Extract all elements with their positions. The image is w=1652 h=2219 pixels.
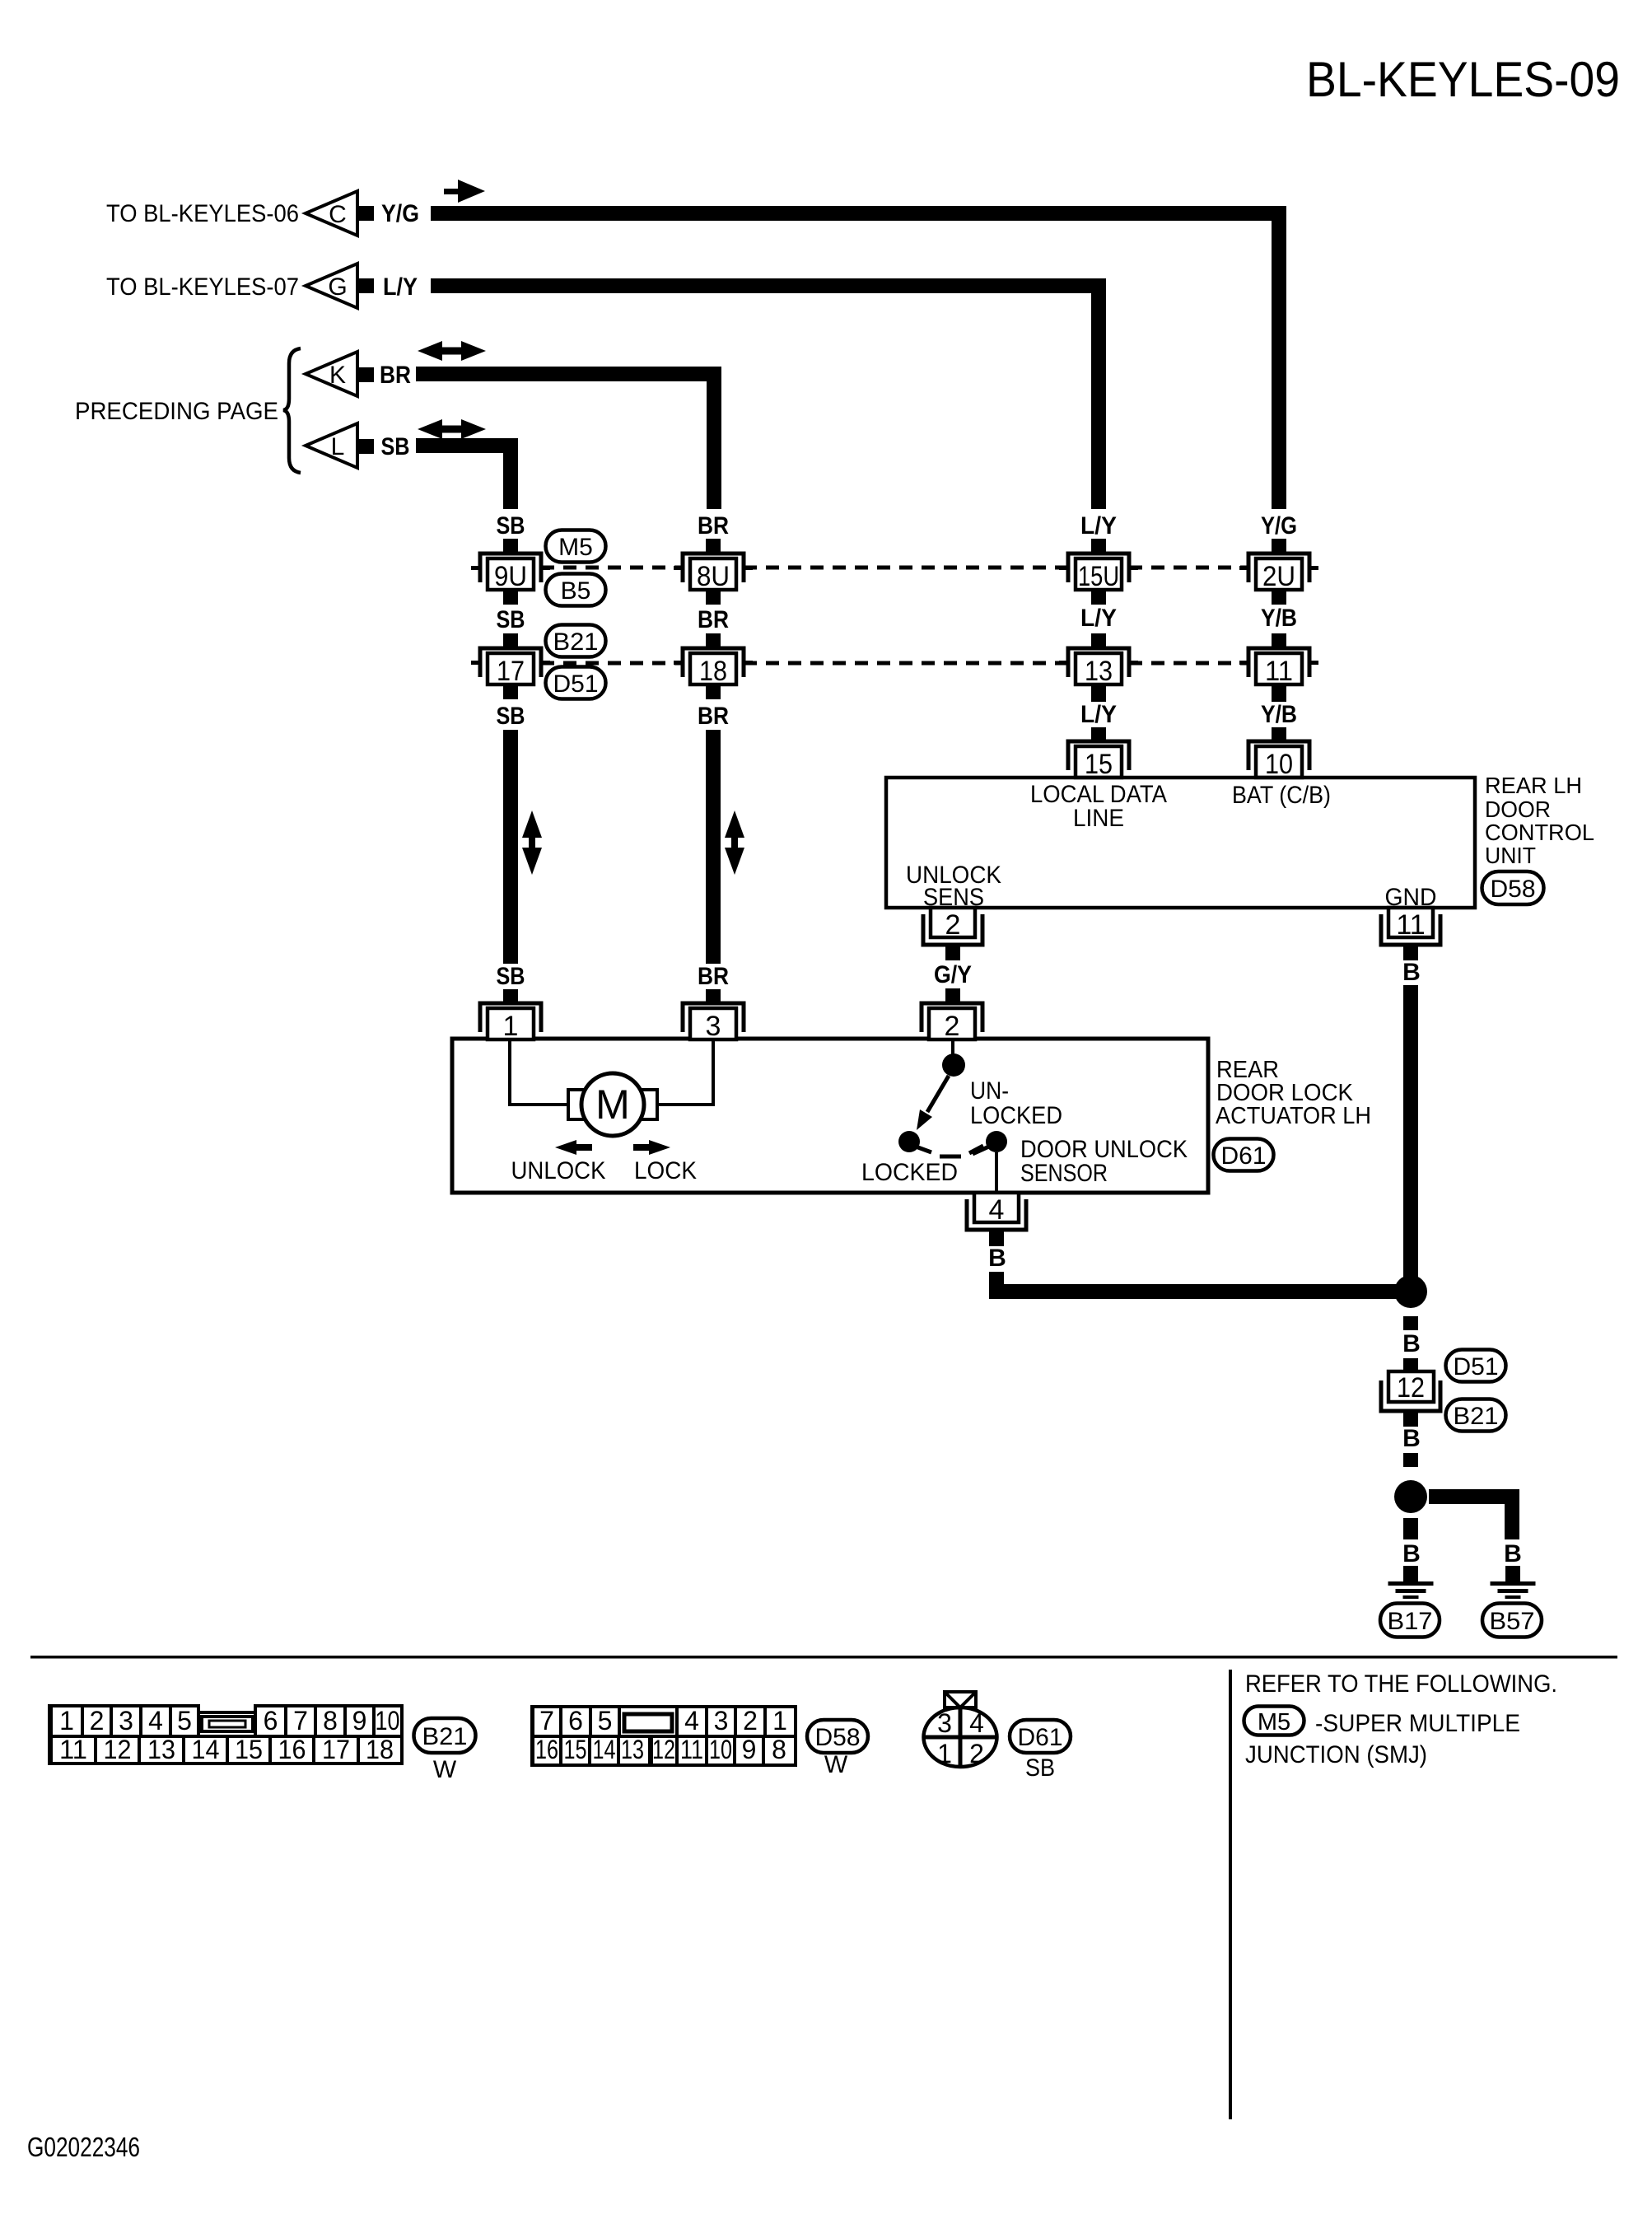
svg-text:17: 17	[322, 1735, 350, 1764]
svg-text:17: 17	[497, 656, 525, 687]
svg-text:3: 3	[714, 1706, 729, 1735]
svg-text:4: 4	[684, 1706, 699, 1735]
svg-text:BR: BR	[380, 362, 411, 389]
svg-text:M5: M5	[1258, 1709, 1290, 1735]
svg-text:BR: BR	[698, 606, 729, 633]
svg-text:C: C	[329, 201, 347, 228]
svg-text:BR: BR	[698, 512, 729, 540]
svg-text:B57: B57	[1490, 1608, 1535, 1635]
svg-text:D51: D51	[553, 670, 599, 698]
svg-text:D58: D58	[1491, 876, 1536, 903]
svg-text:BL-KEYLES-09: BL-KEYLES-09	[1306, 52, 1620, 107]
svg-text:1: 1	[59, 1706, 74, 1735]
svg-text:Y/B: Y/B	[1261, 605, 1297, 632]
svg-text:4: 4	[989, 1194, 1005, 1226]
svg-text:PRECEDING PAGE: PRECEDING PAGE	[75, 398, 278, 425]
svg-text:L/Y: L/Y	[1080, 701, 1117, 728]
svg-text:G02022346: G02022346	[27, 2132, 140, 2162]
svg-text:4: 4	[969, 1708, 984, 1738]
svg-text:2U: 2U	[1262, 561, 1295, 592]
svg-text:12: 12	[1397, 1372, 1425, 1404]
svg-text:BR: BR	[698, 703, 729, 730]
svg-text:LOCK: LOCK	[634, 1157, 697, 1184]
svg-text:5: 5	[598, 1706, 613, 1735]
svg-text:D51: D51	[1454, 1353, 1499, 1380]
svg-text:-SUPER MULTIPLE: -SUPER MULTIPLE	[1315, 1710, 1520, 1737]
svg-text:8: 8	[323, 1706, 338, 1735]
svg-text:16: 16	[278, 1735, 306, 1764]
svg-text:2: 2	[90, 1706, 105, 1735]
svg-text:Y/G: Y/G	[1261, 512, 1297, 540]
svg-text:JUNCTION (SMJ): JUNCTION (SMJ)	[1245, 1741, 1427, 1768]
svg-text:B17: B17	[1388, 1608, 1433, 1635]
svg-text:2: 2	[969, 1739, 984, 1768]
svg-text:15: 15	[235, 1735, 263, 1764]
svg-text:13: 13	[1085, 656, 1113, 687]
svg-text:LINE: LINE	[1073, 805, 1124, 832]
svg-text:2: 2	[945, 1011, 960, 1042]
svg-text:9: 9	[742, 1735, 757, 1764]
svg-text:2: 2	[945, 909, 961, 941]
svg-text:4: 4	[148, 1706, 163, 1735]
svg-text:UN-: UN-	[970, 1077, 1009, 1105]
svg-text:14: 14	[593, 1735, 616, 1764]
svg-text:TO BL-KEYLES-07: TO BL-KEYLES-07	[106, 273, 299, 301]
svg-text:G/Y: G/Y	[934, 961, 972, 988]
svg-text:1: 1	[503, 1011, 519, 1042]
svg-text:SB: SB	[1025, 1754, 1055, 1782]
svg-text:LOCKED: LOCKED	[970, 1102, 1062, 1129]
svg-text:11: 11	[1265, 656, 1293, 687]
svg-text:SB: SB	[381, 433, 410, 460]
svg-text:B: B	[1504, 1540, 1522, 1567]
svg-text:18: 18	[699, 656, 727, 687]
svg-text:SB: SB	[497, 606, 525, 633]
svg-text:UNIT: UNIT	[1485, 843, 1536, 868]
svg-text:SB: SB	[497, 512, 525, 540]
svg-text:M: M	[595, 1081, 630, 1128]
svg-text:13: 13	[147, 1735, 175, 1764]
svg-text:REFER TO THE FOLLOWING.: REFER TO THE FOLLOWING.	[1245, 1670, 1557, 1698]
svg-text:B: B	[988, 1245, 1006, 1272]
svg-text:B: B	[1402, 959, 1421, 986]
svg-text:9U: 9U	[494, 561, 527, 592]
svg-text:L/Y: L/Y	[1080, 512, 1117, 540]
svg-text:10: 10	[1265, 749, 1293, 780]
svg-text:8U: 8U	[697, 561, 730, 592]
svg-text:9: 9	[352, 1706, 367, 1735]
svg-text:3: 3	[706, 1011, 721, 1042]
svg-text:3: 3	[119, 1706, 133, 1735]
svg-text:5: 5	[177, 1706, 192, 1735]
svg-text:B: B	[1402, 1425, 1421, 1452]
svg-text:REAR LH: REAR LH	[1485, 773, 1582, 798]
svg-text:Y/B: Y/B	[1261, 701, 1297, 728]
svg-text:D61: D61	[1018, 1724, 1063, 1751]
svg-text:L/Y: L/Y	[1080, 605, 1117, 632]
svg-text:1: 1	[772, 1706, 787, 1735]
svg-text:16: 16	[535, 1735, 558, 1764]
svg-text:6: 6	[264, 1706, 278, 1735]
svg-text:SB: SB	[497, 963, 525, 990]
svg-text:B21: B21	[1454, 1403, 1499, 1430]
svg-text:LOCKED: LOCKED	[861, 1159, 958, 1186]
svg-text:BAT (C/B): BAT (C/B)	[1232, 782, 1331, 809]
svg-text:10: 10	[709, 1735, 732, 1764]
svg-text:D61: D61	[1221, 1142, 1267, 1170]
svg-text:G: G	[328, 273, 347, 301]
svg-text:SB: SB	[497, 703, 525, 730]
svg-text:DOOR: DOOR	[1485, 797, 1551, 822]
svg-text:BR: BR	[698, 963, 729, 990]
svg-text:Y/G: Y/G	[381, 200, 419, 227]
svg-text:L: L	[331, 433, 345, 460]
svg-text:6: 6	[568, 1706, 583, 1735]
svg-text:B21: B21	[422, 1723, 468, 1750]
svg-text:W: W	[433, 1756, 457, 1783]
svg-text:W: W	[824, 1751, 848, 1778]
svg-text:11: 11	[680, 1735, 703, 1764]
svg-text:13: 13	[621, 1735, 644, 1764]
svg-text:ACTUATOR LH: ACTUATOR LH	[1216, 1103, 1371, 1129]
svg-text:CONTROL: CONTROL	[1485, 820, 1594, 845]
svg-text:SENSOR: SENSOR	[1020, 1160, 1108, 1187]
svg-text:18: 18	[366, 1735, 394, 1764]
svg-text:L/Y: L/Y	[383, 273, 418, 301]
svg-text:14: 14	[192, 1735, 220, 1764]
svg-text:10: 10	[376, 1706, 400, 1735]
svg-text:M5: M5	[558, 534, 593, 561]
svg-text:UNLOCK: UNLOCK	[511, 1157, 606, 1184]
svg-text:1: 1	[937, 1739, 952, 1768]
svg-text:15: 15	[1085, 749, 1113, 780]
svg-text:K: K	[329, 362, 346, 389]
svg-text:B: B	[1402, 1540, 1421, 1567]
svg-text:11: 11	[59, 1735, 87, 1764]
svg-text:15U: 15U	[1078, 561, 1119, 592]
svg-text:B5: B5	[561, 577, 591, 605]
svg-text:7: 7	[293, 1706, 308, 1735]
svg-text:8: 8	[772, 1735, 786, 1764]
svg-text:12: 12	[104, 1735, 132, 1764]
svg-text:15: 15	[564, 1735, 587, 1764]
svg-text:B21: B21	[553, 628, 599, 656]
svg-text:B: B	[1402, 1330, 1421, 1357]
svg-text:12: 12	[652, 1735, 675, 1764]
svg-text:2: 2	[743, 1706, 758, 1735]
svg-text:D58: D58	[815, 1724, 861, 1751]
svg-text:TO BL-KEYLES-06: TO BL-KEYLES-06	[106, 200, 299, 227]
svg-text:11: 11	[1396, 909, 1425, 941]
svg-text:7: 7	[539, 1706, 554, 1735]
svg-text:3: 3	[937, 1708, 952, 1738]
